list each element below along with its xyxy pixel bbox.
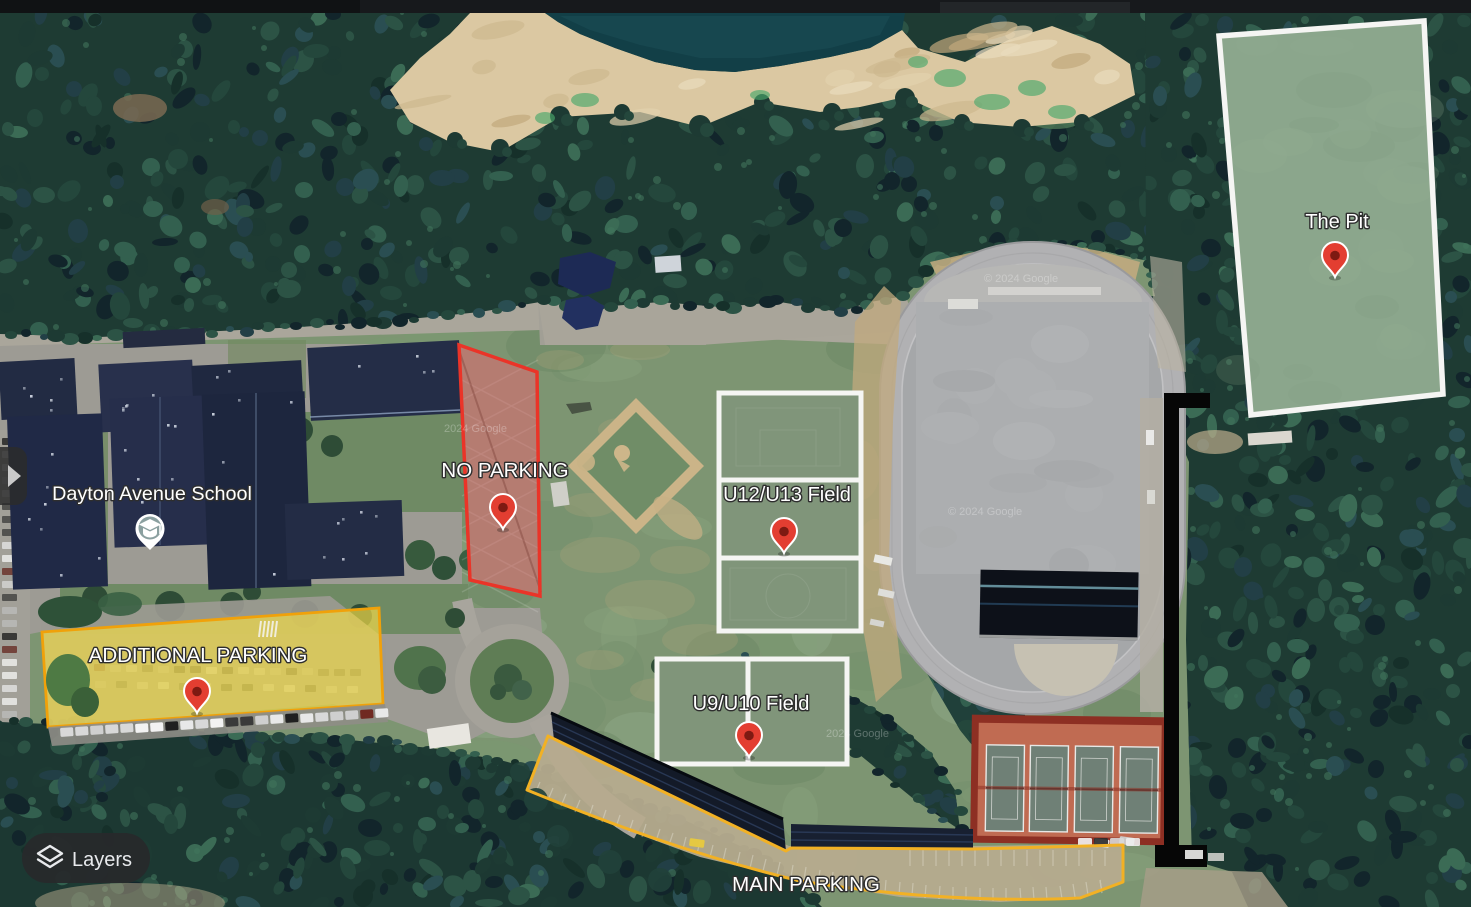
svg-text:2024 Google: 2024 Google <box>826 728 889 740</box>
svg-text:Dayton Avenue School: Dayton Avenue School <box>52 483 252 505</box>
svg-text:NO PARKING: NO PARKING <box>441 459 568 482</box>
svg-text:U12/U13 Field: U12/U13 Field <box>723 484 851 506</box>
svg-text:2024 Google: 2024 Google <box>444 423 507 435</box>
svg-text:ADDITIONAL PARKING: ADDITIONAL PARKING <box>89 644 308 667</box>
svg-text:© 2024 Google: © 2024 Google <box>984 273 1058 285</box>
svg-text:© 2024 Google: © 2024 Google <box>948 506 1022 518</box>
svg-text:The Pit: The Pit <box>1305 211 1369 233</box>
svg-text:MAIN PARKING: MAIN PARKING <box>732 873 880 896</box>
svg-text:U9/U10 Field: U9/U10 Field <box>693 693 810 715</box>
svg-text:Layers: Layers <box>72 849 132 871</box>
